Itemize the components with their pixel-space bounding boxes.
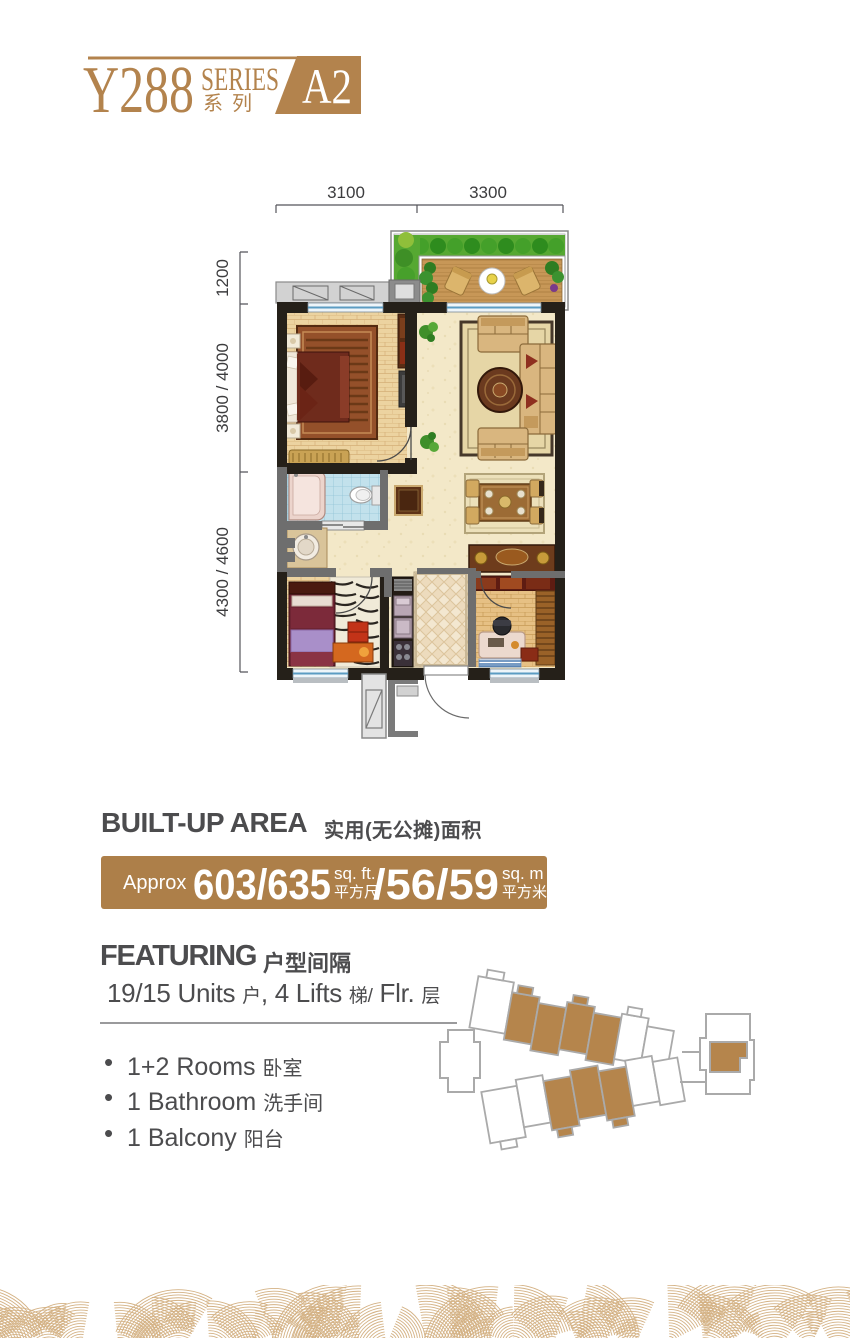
svg-text:Y288: Y288 bbox=[83, 53, 194, 125]
svg-text:/56/59: /56/59 bbox=[373, 861, 499, 909]
svg-text:1200: 1200 bbox=[213, 259, 232, 297]
svg-text:平方米: 平方米 bbox=[502, 884, 547, 901]
svg-text:3800 / 4000: 3800 / 4000 bbox=[213, 343, 232, 433]
svg-text:603/635: 603/635 bbox=[193, 861, 331, 909]
svg-text:4300 / 4600: 4300 / 4600 bbox=[213, 527, 232, 617]
svg-text:sq. ft.: sq. ft. bbox=[334, 864, 376, 883]
svg-text:A2: A2 bbox=[302, 58, 352, 114]
svg-text:3100: 3100 bbox=[327, 183, 365, 202]
svg-text:Approx: Approx bbox=[123, 872, 186, 894]
svg-text:sq. m: sq. m bbox=[502, 864, 544, 883]
svg-text:3300: 3300 bbox=[469, 183, 507, 202]
